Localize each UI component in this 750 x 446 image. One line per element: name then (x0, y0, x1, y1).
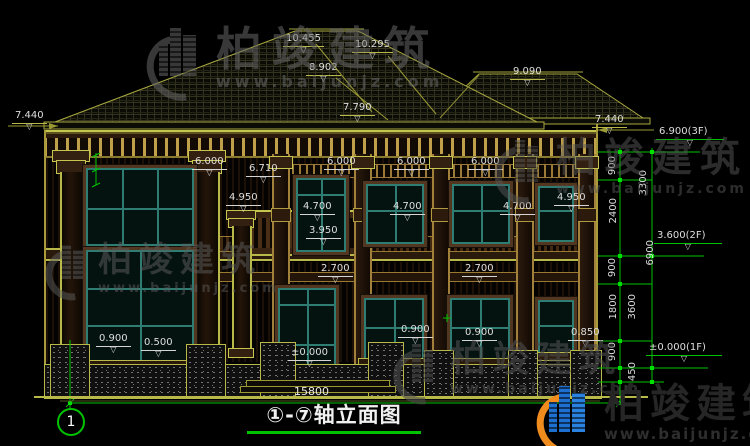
watermark-color: 柏竣建筑 www.baijunjz.com (540, 384, 750, 444)
watermark-brand: 柏竣建筑 (216, 22, 440, 76)
watermark-brand: 柏竣建筑 (98, 240, 262, 280)
axis-bubble-1: 1 (57, 408, 85, 436)
watermark-brand: 柏竣建筑 (450, 339, 622, 380)
title-underline (247, 431, 421, 434)
watermark-brand: 柏竣建筑 (556, 135, 748, 181)
drawing-title: ①-⑦轴立面图 (234, 403, 434, 428)
cad-elevation-drawing: 柏竣建筑 www.baijunjz.com 柏竣建筑 www.baijunjz.… (0, 0, 750, 446)
baijun-logo-icon (150, 26, 208, 88)
watermark-brand: 柏竣建筑 (604, 381, 750, 427)
watermark-url: www.baijunjz.com (216, 72, 443, 91)
watermark-url: www.baijunjz.com (556, 181, 747, 197)
watermark: 柏竣建筑 www.baijunjz.com (498, 138, 748, 197)
watermark-url: www.baijunjz.com (604, 425, 750, 443)
watermark: 柏竣建筑 www.baijunjz.com (150, 26, 443, 91)
watermark-url: www.baijunjz.com (98, 281, 279, 296)
baijun-logo-icon (48, 243, 90, 289)
baijun-logo-icon (540, 384, 596, 444)
watermark: 柏竣建筑 www.baijunjz.com (48, 243, 279, 296)
baijun-logo-icon (396, 342, 442, 392)
baijun-logo-icon (498, 138, 548, 192)
